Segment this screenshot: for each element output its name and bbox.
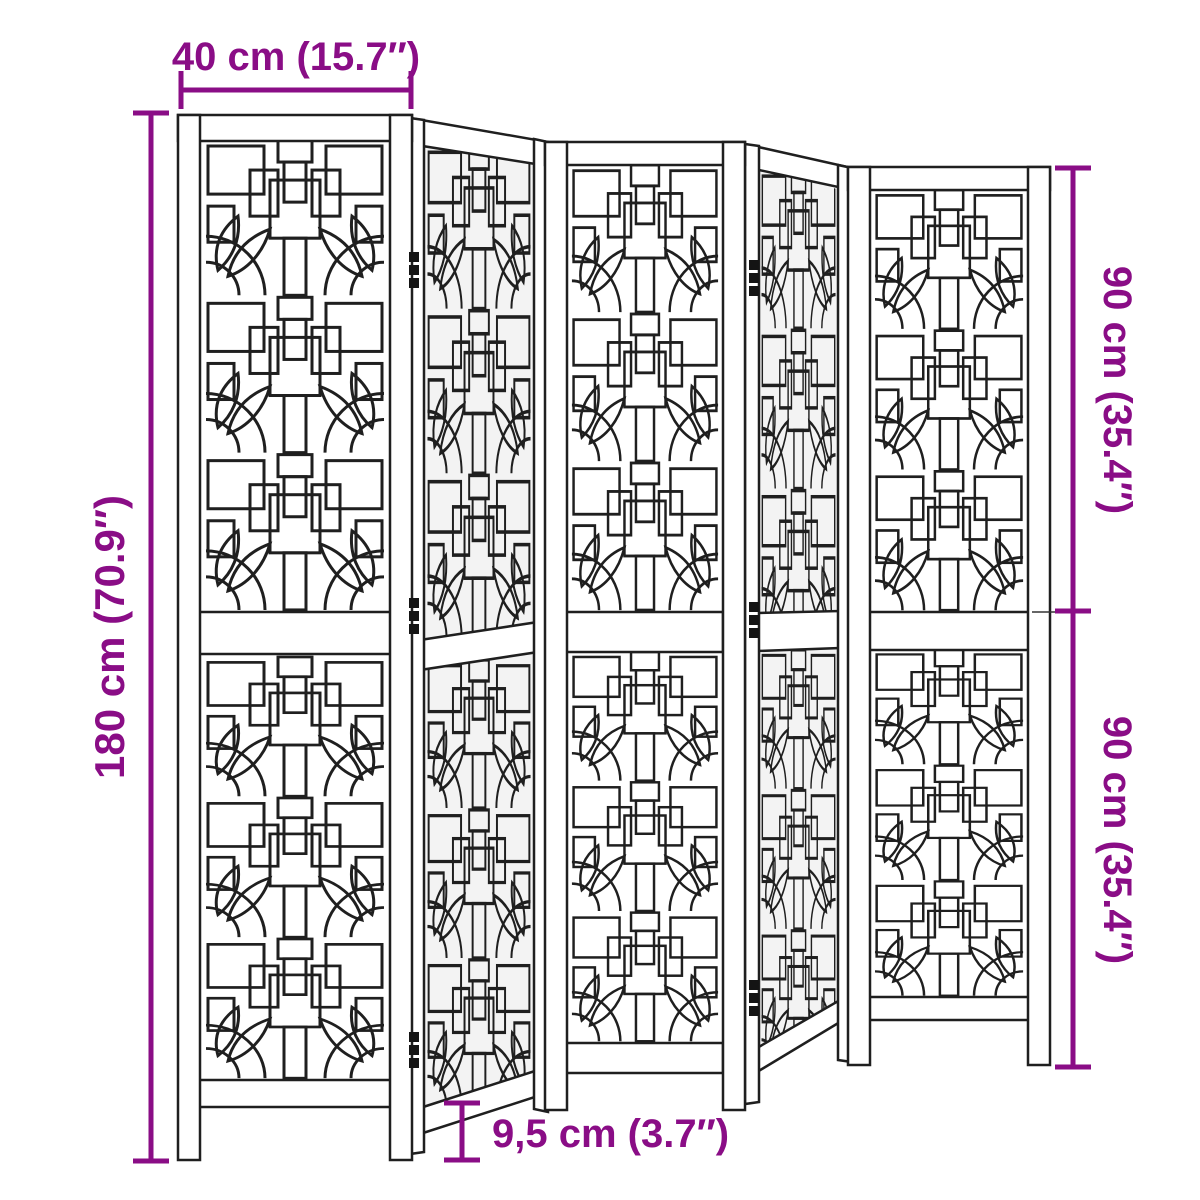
panel-1 (178, 115, 412, 1160)
dimension-label-leg-height: 9,5 cm (3.7″) (492, 1112, 729, 1156)
dimension-label-total-height: 180 cm (70.9″) (86, 495, 133, 779)
hinge-icon (409, 598, 419, 634)
panel-2 (410, 118, 548, 1154)
hinge-icon (409, 252, 419, 288)
divider-drawing (178, 115, 1070, 1160)
dimension-left-total-height (133, 113, 169, 1161)
hinge-icon (409, 1032, 419, 1068)
dimension-right-halves (1055, 168, 1091, 1067)
panel-5 (848, 167, 1050, 1065)
panel-4 (745, 144, 852, 1104)
hinge-icon (749, 260, 759, 296)
hinge-icon (749, 980, 759, 1016)
dimension-label-upper-half: 90 cm (35.4″) (1095, 266, 1139, 514)
dimension-label-panel-width: 40 cm (15.7″) (172, 35, 420, 79)
dimension-label-lower-half: 90 cm (35.4″) (1095, 716, 1139, 964)
diagram-canvas: 40 cm (15.7″) 180 cm (70.9″) 90 cm (35.4… (0, 0, 1200, 1200)
room-divider-dimension-diagram: 40 cm (15.7″) 180 cm (70.9″) 90 cm (35.4… (0, 0, 1200, 1200)
hinge-icon (749, 602, 759, 638)
panel-3 (545, 142, 745, 1110)
